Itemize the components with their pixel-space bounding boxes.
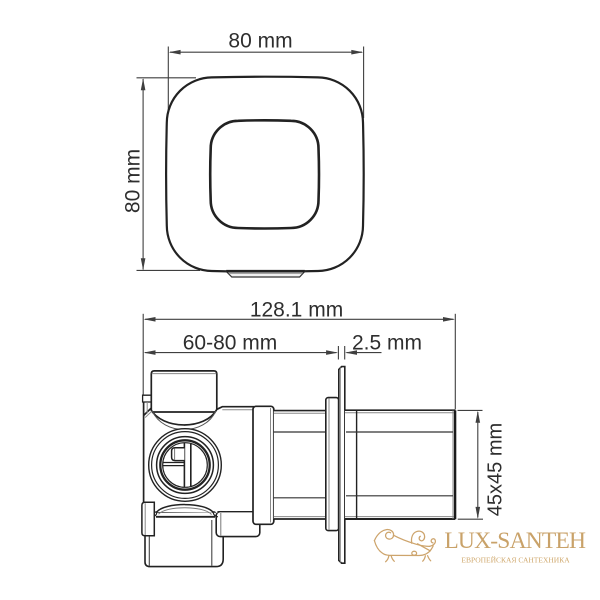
svg-text:45x45 mm: 45x45 mm [485,423,507,516]
svg-text:ЕВРОПЕЙСКАЯ САНТЕХНИКА: ЕВРОПЕЙСКАЯ САНТЕХНИКА [461,555,570,564]
svg-text:LUX-SANTEH: LUX-SANTEH [444,528,586,554]
svg-text:80 mm: 80 mm [122,149,145,213]
svg-text:128.1 mm: 128.1 mm [250,299,343,322]
svg-text:2.5 mm: 2.5 mm [352,332,422,355]
svg-text:80 mm: 80 mm [228,30,292,53]
svg-text:60-80 mm: 60-80 mm [183,332,278,355]
